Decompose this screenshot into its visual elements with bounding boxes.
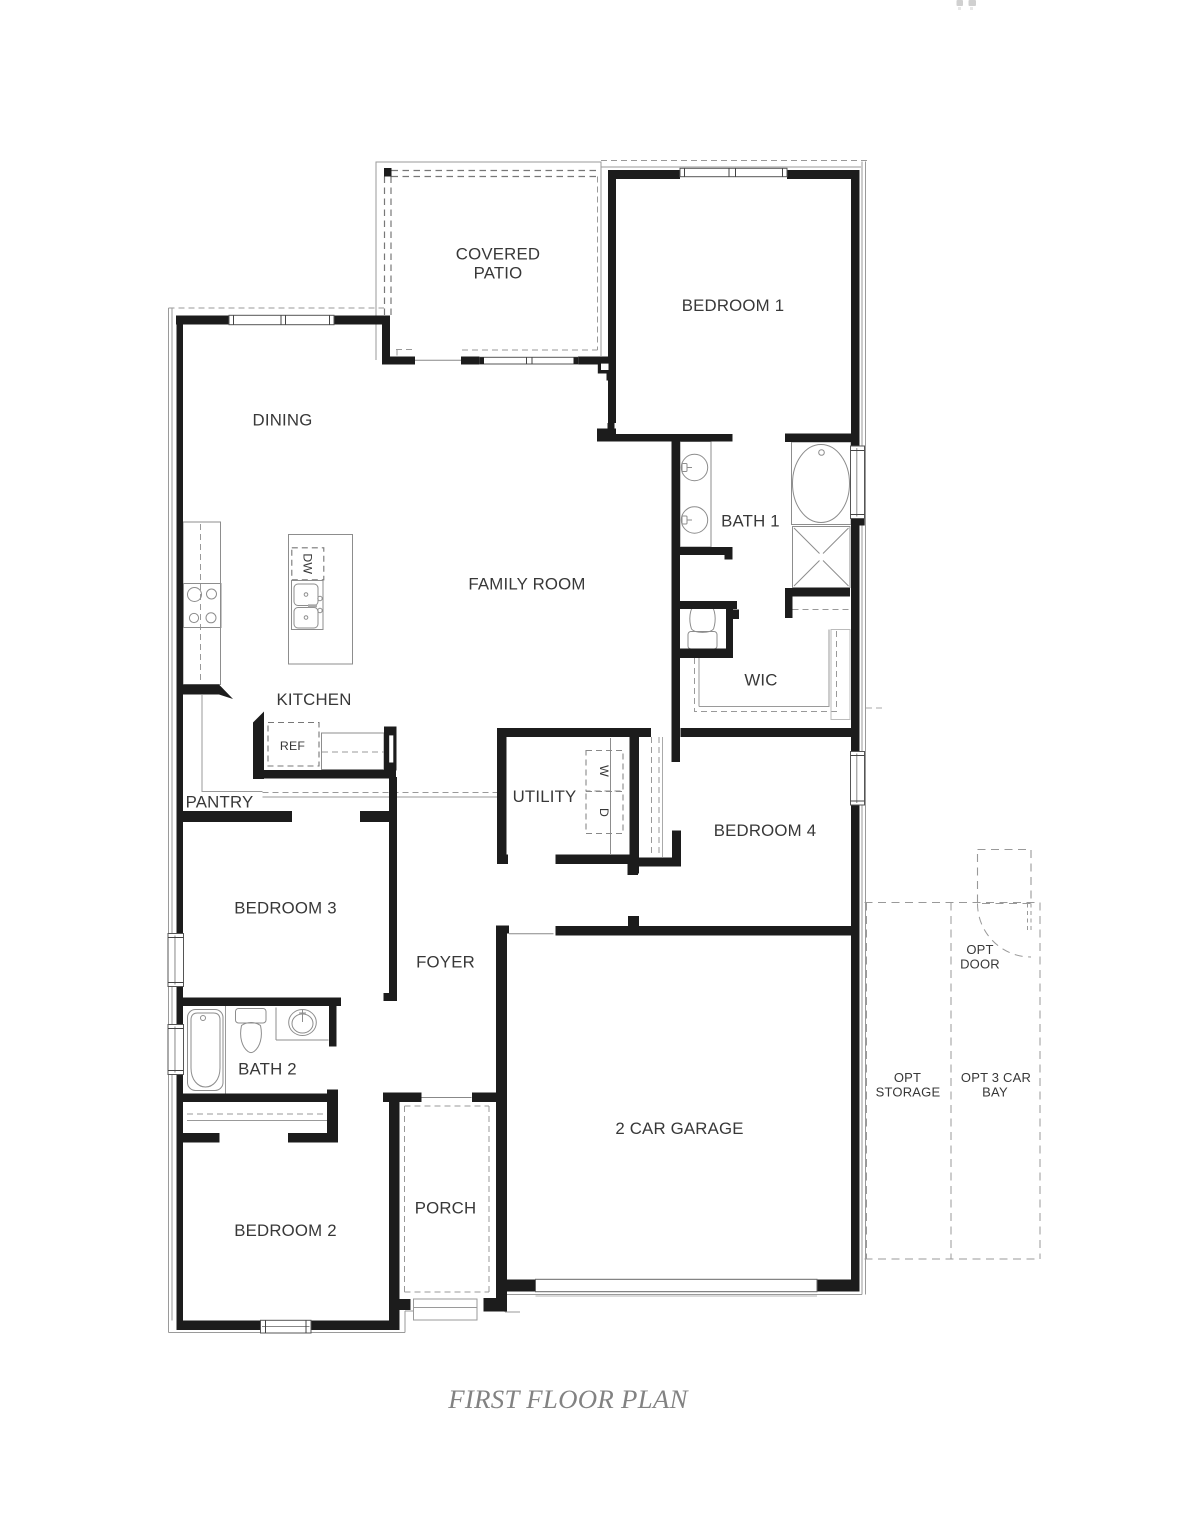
svg-text:D: D [597, 808, 611, 817]
svg-text:BEDROOM 2: BEDROOM 2 [234, 1221, 337, 1240]
svg-text:STORAGE: STORAGE [876, 1084, 941, 1099]
svg-text:DW: DW [301, 553, 315, 574]
svg-text:WIC: WIC [744, 671, 777, 690]
svg-text:DINING: DINING [253, 411, 313, 430]
svg-text:BATH 1: BATH 1 [721, 512, 780, 531]
svg-text:2 CAR GARAGE: 2 CAR GARAGE [615, 1119, 743, 1138]
svg-text:PANTRY: PANTRY [186, 793, 254, 812]
svg-text:OPT 3 CAR: OPT 3 CAR [961, 1070, 1031, 1085]
svg-text:BEDROOM 1: BEDROOM 1 [682, 296, 785, 315]
svg-text:COVERED: COVERED [456, 245, 540, 264]
svg-text:FIRST FLOOR PLAN: FIRST FLOOR PLAN [447, 1384, 689, 1414]
svg-text:OPT: OPT [894, 1070, 921, 1085]
svg-text:KITCHEN: KITCHEN [276, 690, 351, 709]
svg-text:BEDROOM 4: BEDROOM 4 [714, 821, 817, 840]
svg-text:BAY: BAY [982, 1084, 1008, 1099]
svg-text:PORCH: PORCH [415, 1199, 477, 1218]
svg-text:BEDROOM 3: BEDROOM 3 [234, 899, 337, 918]
svg-text:W: W [597, 765, 611, 777]
svg-text:REF: REF [280, 739, 305, 753]
svg-text:FAMILY ROOM: FAMILY ROOM [468, 575, 585, 594]
svg-text:OPT: OPT [966, 942, 993, 957]
svg-text:PATIO: PATIO [474, 264, 523, 283]
svg-text:DOOR: DOOR [960, 956, 1000, 971]
svg-text:FOYER: FOYER [416, 953, 475, 972]
svg-text:BATH 2: BATH 2 [238, 1060, 297, 1079]
svg-text:UTILITY: UTILITY [513, 787, 577, 806]
